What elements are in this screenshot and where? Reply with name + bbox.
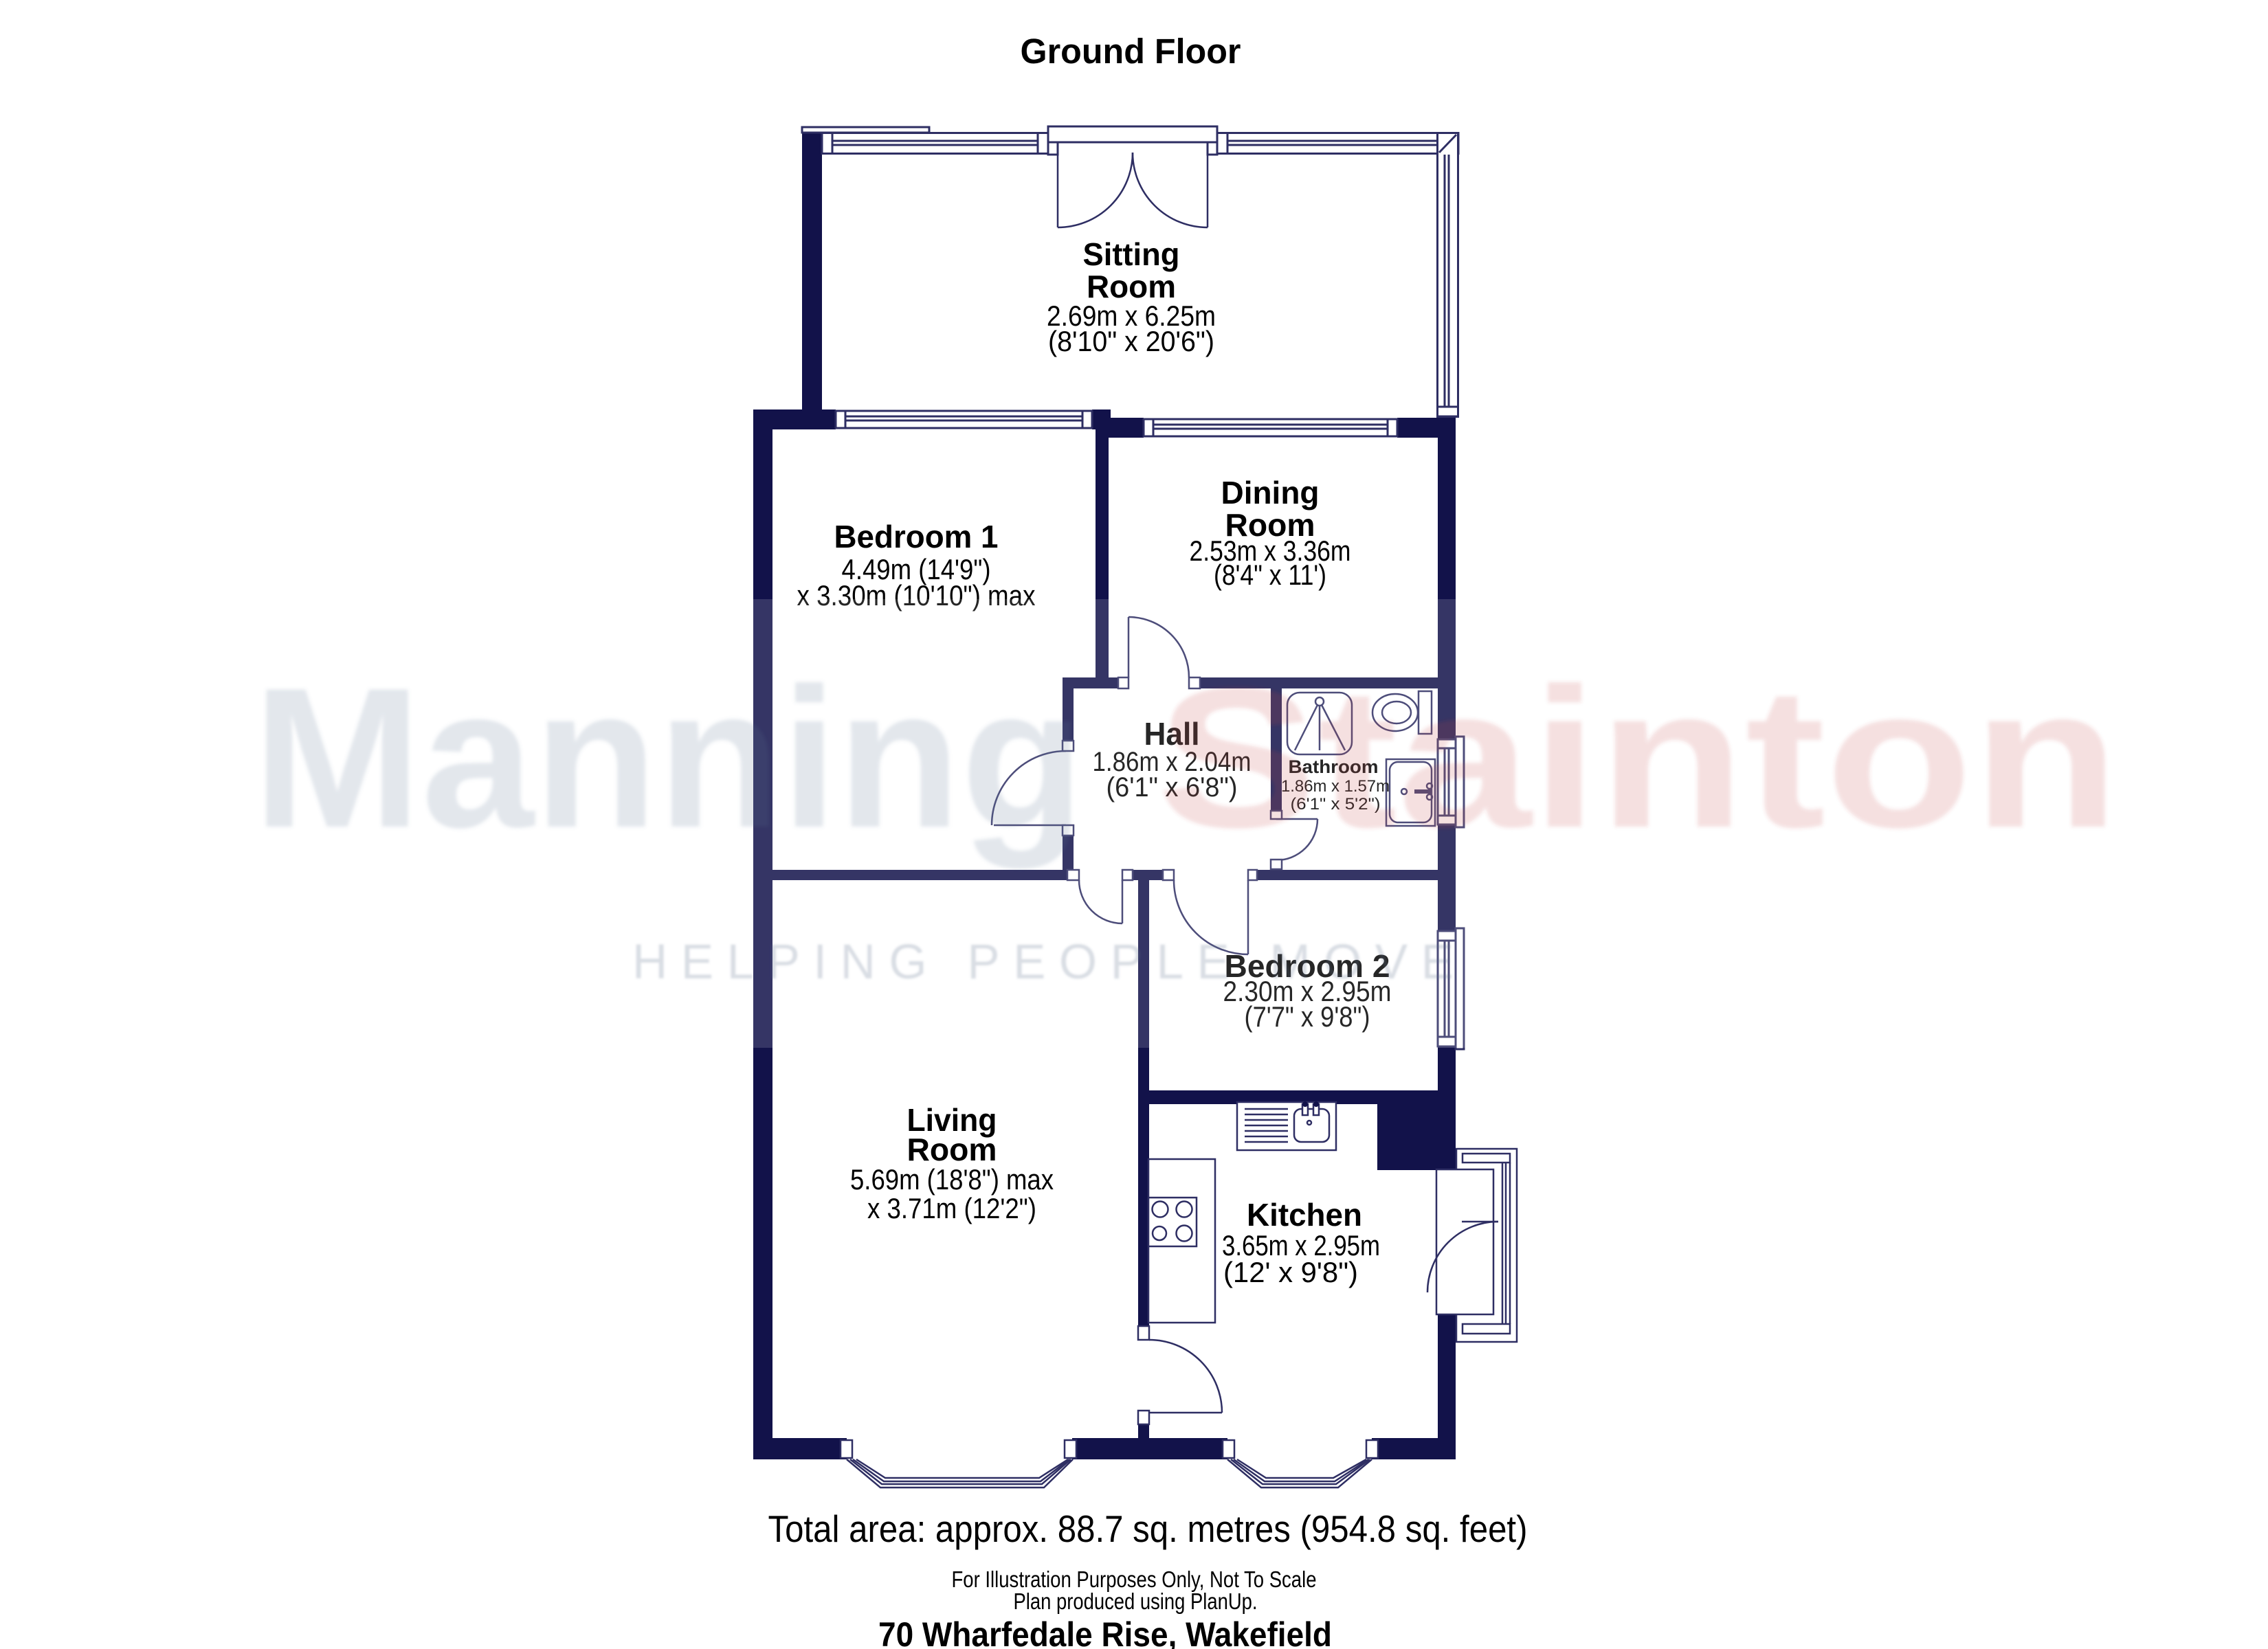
svg-text:Bedroom 1: Bedroom 1 [834, 519, 999, 554]
svg-text:Ground Floor: Ground Floor [1021, 32, 1241, 71]
svg-text:Stainton: Stainton [1157, 647, 2120, 869]
svg-text:70 Wharfedale Rise, Wakefield: 70 Wharfedale Rise, Wakefield [878, 1615, 1332, 1649]
svg-text:Room: Room [907, 1132, 997, 1167]
svg-text:x 3.71m (12'2"): x 3.71m (12'2") [867, 1192, 1036, 1224]
svg-text:Sitting: Sitting [1083, 236, 1180, 272]
svg-text:(8'10" x 20'6"): (8'10" x 20'6") [1048, 325, 1214, 357]
svg-text:Total area: approx. 88.7 sq. m: Total area: approx. 88.7 sq. metres (954… [768, 1507, 1528, 1550]
svg-text:5.69m (18'8") max: 5.69m (18'8") max [850, 1163, 1054, 1196]
svg-text:Manning: Manning [253, 647, 1085, 870]
svg-text:Plan produced using PlanUp.: Plan produced using PlanUp. [1014, 1589, 1258, 1614]
svg-text:Kitchen: Kitchen [1247, 1197, 1362, 1233]
svg-text:(12' x 9'8"): (12' x 9'8") [1223, 1256, 1358, 1288]
svg-text:Dining: Dining [1221, 475, 1320, 511]
svg-text:(8'4" x 11'): (8'4" x 11') [1214, 559, 1326, 591]
